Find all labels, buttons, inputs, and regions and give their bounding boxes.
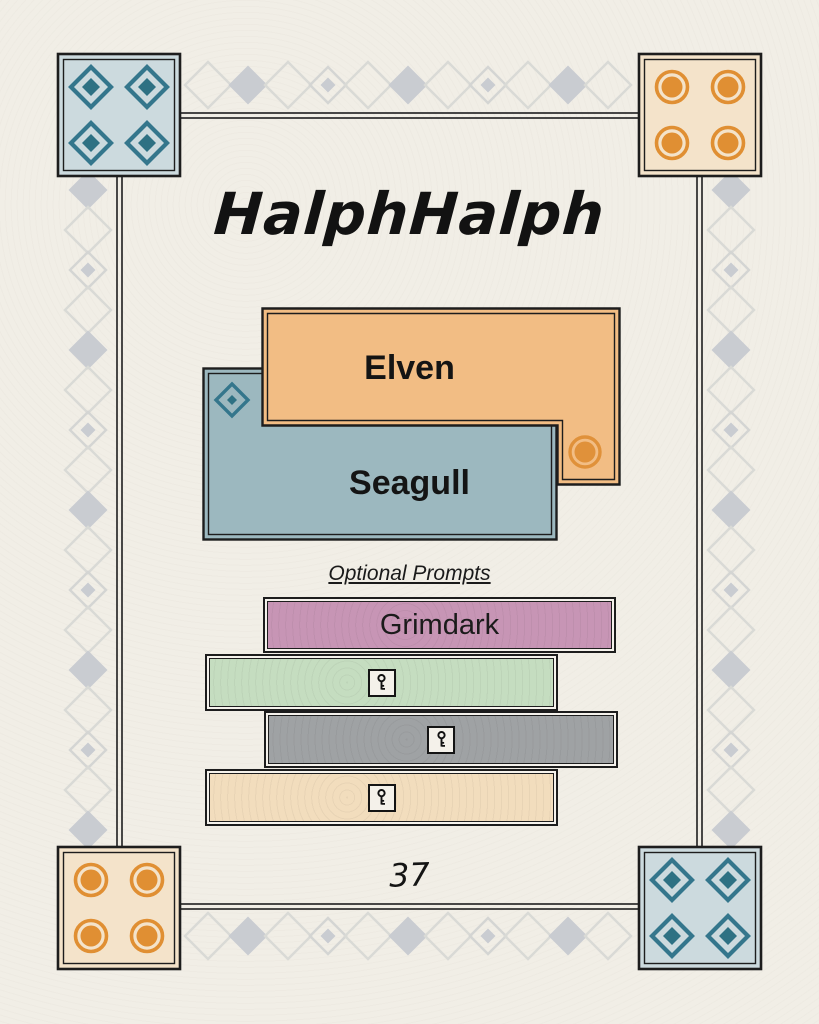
prompt-grimdark-label: Grimdark [380,609,499,642]
lock-key-icon [368,669,396,697]
diamond-chain-right [708,171,754,850]
diamond-chain-bottom [185,913,631,959]
elven-label: Elven [364,349,455,388]
seagull-button[interactable]: Seagull [233,455,586,511]
elven-button[interactable]: Elven [262,340,557,396]
seagull-label: Seagull [349,464,470,503]
prompt-locked-button-3[interactable] [205,769,558,826]
prompt-locked-button-1[interactable] [205,654,558,711]
corner-square-top-right [639,54,761,176]
lock-key-icon [427,726,455,754]
lock-key-icon [368,784,396,812]
corner-square-top-left [58,54,180,176]
diamond-chain-top [185,62,631,108]
prompt-grimdark-button[interactable]: Grimdark [263,597,616,653]
page-title: HalphHalph [0,180,819,248]
prompt-locked-button-2[interactable] [264,711,618,768]
page: HalphHalph Elven Seagull Optional Prompt… [0,0,819,1024]
diamond-chain-left [65,171,111,850]
optional-prompts-heading: Optional Prompts [0,562,819,586]
